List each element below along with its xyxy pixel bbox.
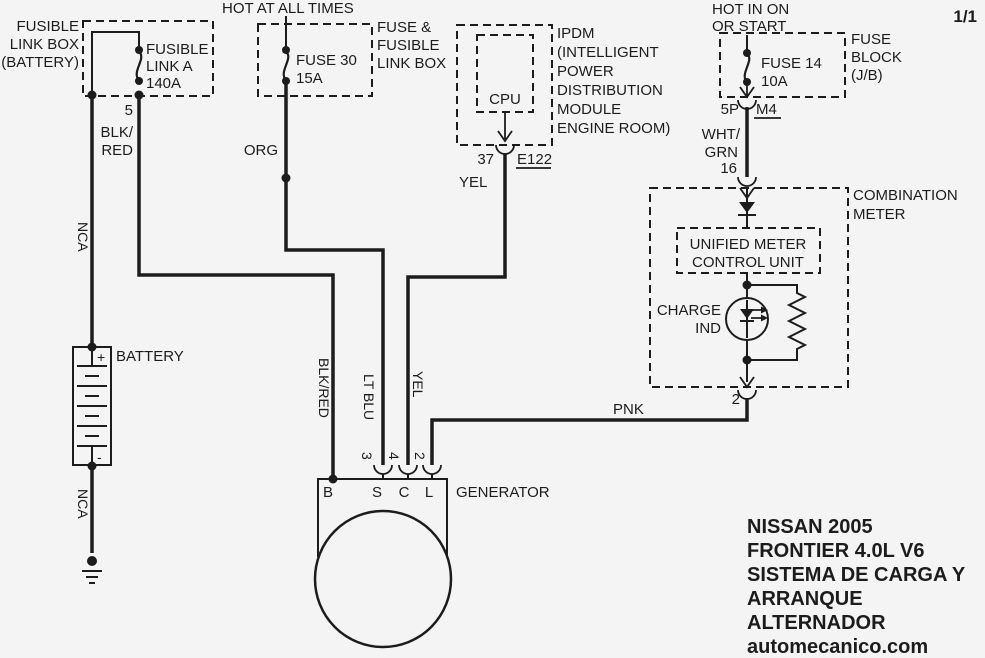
- fuse-block-label: (J/B): [851, 67, 883, 84]
- wires: [92, 82, 747, 553]
- connectors: [374, 84, 756, 474]
- ipdm-label: IPDM: [557, 25, 595, 42]
- connector-id: M4: [756, 101, 777, 118]
- pin-number-rotated: 4: [386, 452, 402, 460]
- ipdm-label: POWER: [557, 63, 614, 80]
- fuse-14-label: FUSE 14: [761, 55, 822, 72]
- fuse-14-icon: [745, 54, 750, 82]
- ground-dot: [87, 556, 97, 566]
- junction-dot: [88, 343, 97, 352]
- wire-color-label-rotated: BLK/RED: [316, 358, 332, 418]
- pin-number-rotated: 2: [412, 452, 428, 460]
- wire-color-label-rotated: YEL: [410, 371, 426, 398]
- pin-number: 37: [477, 151, 494, 168]
- pin-number-rotated: 3: [359, 452, 375, 460]
- power-source-label: HOT IN ON: [712, 1, 789, 18]
- terminal-dot: [135, 77, 143, 85]
- generator-body-icon: [315, 511, 451, 647]
- wire-color-label: BLK/: [100, 124, 133, 141]
- generator-symbol: [315, 479, 451, 647]
- wire-color-label: PNK: [613, 401, 644, 418]
- connector-generator-s-icon: [374, 465, 392, 474]
- wire-color-label: ORG: [244, 142, 278, 159]
- terminal-dot: [743, 49, 751, 57]
- fusible-link-a-label: LINK A: [146, 58, 193, 75]
- pin-number: 5P: [721, 101, 739, 118]
- unified-meter-control-unit-label: UNIFIED METER: [690, 236, 807, 253]
- terminal-dot: [282, 77, 290, 85]
- footer-website: automecanico.com: [747, 636, 928, 658]
- fusible-link-loop: [92, 32, 139, 95]
- pin-number: 2: [732, 391, 740, 408]
- fusible-link-box-label: (BATTERY): [1, 54, 79, 71]
- fuse-fusible-link-box-label: FUSIBLE: [377, 37, 440, 54]
- labels: 1/1 FUSIBLE LINK BOX (BATTERY) FUSIBLE L…: [1, 0, 977, 658]
- fuse-30-label: FUSE 30: [296, 52, 357, 69]
- fuse-fusible-link-box-label: FUSE &: [377, 19, 431, 36]
- wire-color-label: GRN: [705, 144, 738, 161]
- junction-dot: [743, 281, 752, 290]
- ipdm-label: ENGINE ROOM): [557, 120, 670, 137]
- generator-label: GENERATOR: [456, 484, 550, 501]
- generator-terminal: L: [425, 484, 433, 501]
- footer-title: NISSAN 2005: [747, 516, 873, 538]
- wire-color-label-rotated: LT BLU: [361, 374, 377, 420]
- pin-number: 16: [720, 160, 737, 177]
- generator-terminal: C: [399, 484, 410, 501]
- charge-indicator-led-icon: [726, 298, 768, 340]
- charge-indicator-label: IND: [695, 320, 721, 337]
- fuse-fusible-link-box-label: LINK BOX: [377, 55, 446, 72]
- fuse-14-rating: 10A: [761, 73, 788, 90]
- wire-color-label-rotated: NCA: [75, 222, 91, 252]
- generator-terminal: B: [323, 484, 333, 501]
- ground-icon: [82, 556, 102, 583]
- junction-dot: [88, 462, 97, 471]
- fuse-block-label: BLOCK: [851, 49, 902, 66]
- battery-negative-sign: -: [97, 449, 102, 465]
- junction-dot: [743, 356, 752, 365]
- junction-dot: [135, 91, 144, 100]
- wiring-diagram: 1/1 FUSIBLE LINK BOX (BATTERY) FUSIBLE L…: [0, 0, 985, 658]
- junction-dots: [88, 91, 752, 484]
- connector-generator-c-icon: [399, 465, 417, 474]
- wire-pnk: [432, 398, 747, 465]
- battery-plates: [77, 366, 107, 446]
- footer-title: FRONTIER 4.0L V6: [747, 540, 924, 562]
- connector-meter-out-icon: [738, 390, 756, 399]
- battery-positive-sign: +: [97, 349, 105, 365]
- generator-terminal: S: [372, 484, 382, 501]
- diode-triangle: [739, 202, 755, 213]
- fusible-link-box-label: FUSIBLE: [16, 18, 79, 35]
- wire-color-label: RED: [101, 142, 133, 159]
- connector-e122-icon: [496, 145, 514, 154]
- charge-indicator-label: CHARGE: [657, 302, 721, 319]
- connector-meter-in-icon: [738, 177, 756, 186]
- ground-lines: [82, 571, 102, 583]
- ipdm-label: DISTRIBUTION: [557, 82, 663, 99]
- power-source-label: HOT AT ALL TIMES: [222, 0, 354, 17]
- wiring-diagram-page: 1/1 FUSIBLE LINK BOX (BATTERY) FUSIBLE L…: [0, 0, 985, 658]
- footer-title: ARRANQUE: [747, 588, 863, 610]
- junction-dot: [282, 174, 291, 183]
- connector-id: E122: [517, 151, 552, 168]
- wire-color-label: YEL: [459, 174, 487, 191]
- power-source-label: OR START: [712, 18, 786, 35]
- pin-number: 5: [125, 102, 133, 119]
- wire-yel: [408, 153, 505, 465]
- fusible-link-a-icon: [137, 52, 142, 80]
- terminal-dot: [282, 46, 290, 54]
- footer-title: ALTERNADOR: [747, 612, 886, 634]
- fuse-30-icon: [284, 52, 289, 80]
- footer-title: SISTEMA DE CARGA Y: [747, 564, 966, 586]
- unified-meter-control-unit-label: CONTROL UNIT: [692, 254, 804, 271]
- ipdm-label: (INTELLIGENT: [557, 44, 659, 61]
- combination-meter-label: METER: [853, 206, 906, 223]
- junction-dot: [88, 91, 97, 100]
- wire-color-label-rotated: NCA: [75, 489, 91, 519]
- terminal-dot: [135, 46, 143, 54]
- fusible-link-box-label: LINK BOX: [10, 36, 79, 53]
- cpu-label: CPU: [489, 91, 521, 108]
- battery-label: BATTERY: [116, 348, 184, 365]
- combination-meter-label: COMBINATION: [853, 187, 958, 204]
- wire-blk-red: [139, 96, 333, 479]
- fusible-link-a-label: FUSIBLE: [146, 41, 209, 58]
- fuse-30-rating: 15A: [296, 70, 323, 87]
- battery-symbol-icon: [73, 347, 111, 465]
- fusible-link-a-rating: 140A: [146, 75, 181, 92]
- sheet-indicator: 1/1: [953, 7, 977, 26]
- connector-generator-l-icon: [423, 465, 441, 474]
- wire-color-label: WHT/: [702, 126, 741, 143]
- junction-dot: [329, 475, 338, 484]
- fuse-block-label: FUSE: [851, 31, 891, 48]
- ipdm-label: MODULE: [557, 101, 621, 118]
